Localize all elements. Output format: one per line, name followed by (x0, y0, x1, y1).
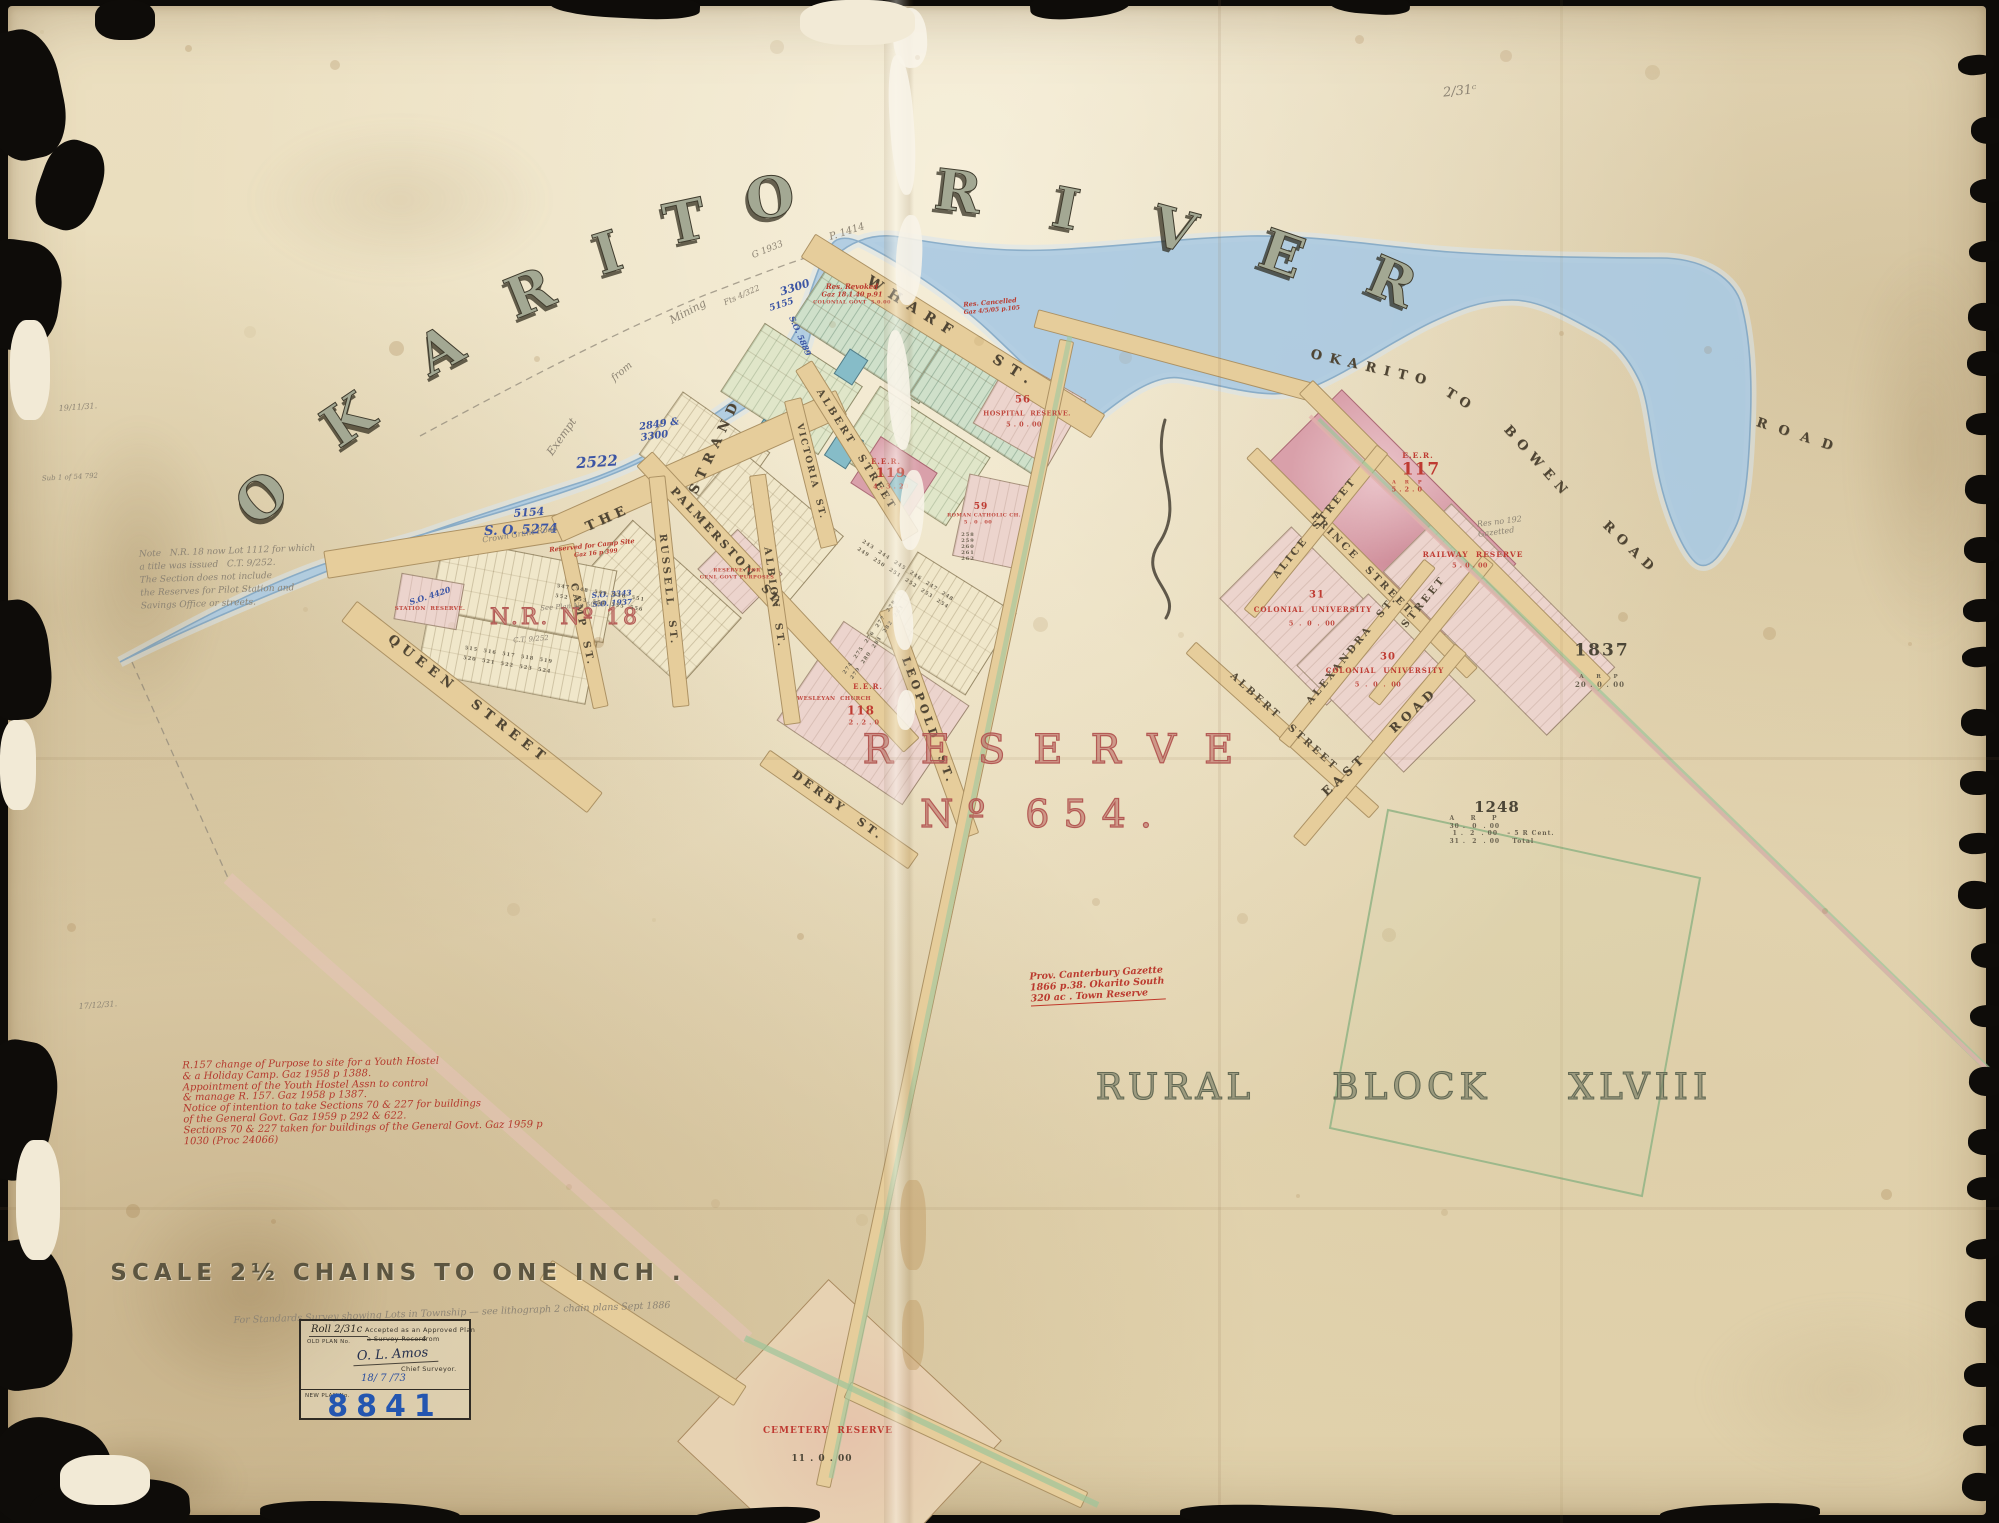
stamp-accepted-line1: Accepted as an Approved Plan (365, 1326, 475, 1334)
stamp-date: 18/ 7 /73 (361, 1373, 406, 1384)
map-scan: SCALE 2½ CHAINS TO ONE INCH . For Standa… (0, 0, 1999, 1523)
stamp-accepted-tail: from (423, 1335, 440, 1343)
stamp-roll-number: Roll 2/31c (309, 1324, 368, 1337)
stamp-accepted-struck: a Survey Record (367, 1335, 426, 1343)
stamp-old-plan-label: OLD PLAN No. (307, 1339, 350, 1345)
approval-stamp: Roll 2/31c OLD PLAN No. Accepted as an A… (299, 1319, 471, 1420)
stamp-signature: O. L. Amos (353, 1345, 439, 1366)
paper-sheet (8, 6, 1986, 1515)
stamp-chief-surveyor: Chief Surveyor. (401, 1365, 457, 1373)
stamp-plan-number: 8841 (301, 1389, 469, 1424)
